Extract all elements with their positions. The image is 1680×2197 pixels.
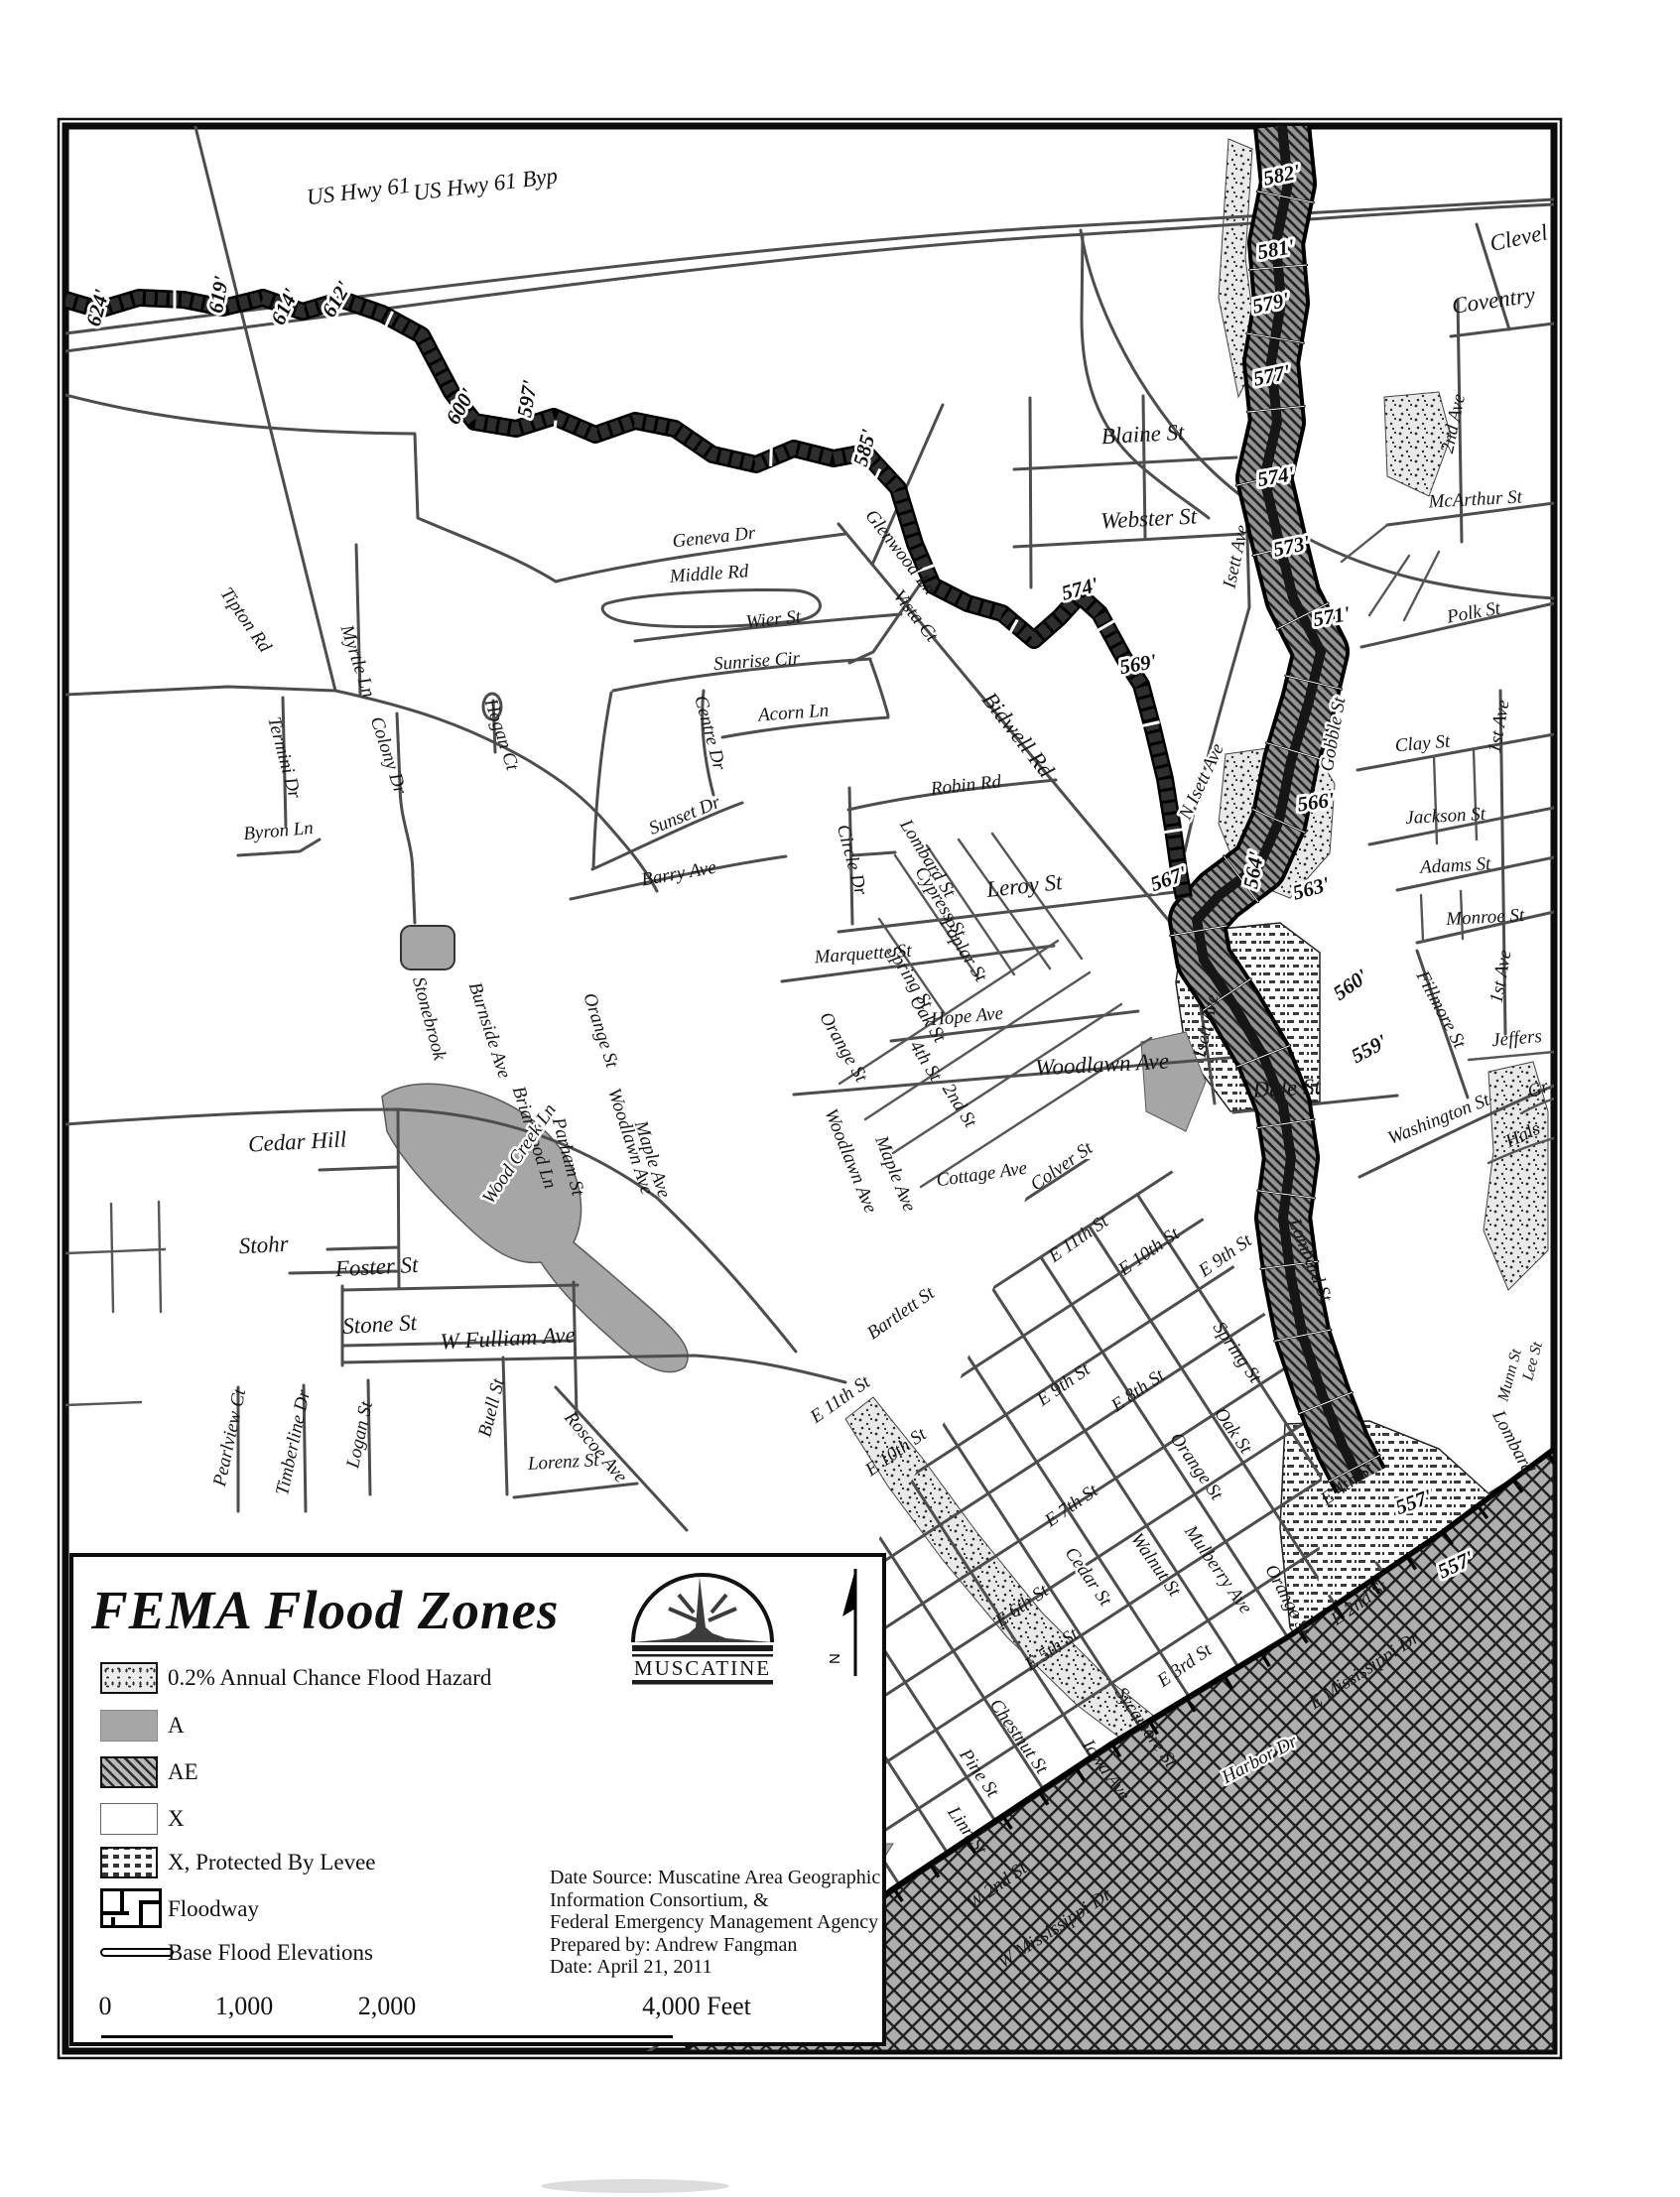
scale-label-4000: 4,000 Feet [642,1992,751,2021]
street-label: Adams St [1418,853,1492,878]
swatch-zone-x [100,1803,158,1835]
street-label: Lorenz St [526,1450,599,1475]
scale-label-2000: 2,000 [358,1992,417,2021]
street-line [554,421,556,441]
swatch-02pct-flood-hazard [100,1662,158,1694]
north-arrow: N [830,1565,869,1689]
street-label: Jeffers [1490,1026,1542,1051]
street-label: Jackson St [1405,804,1486,829]
street-label: Dale St [1251,1074,1322,1102]
scale-label-1000: 1,000 [215,1992,274,2021]
legend-title: FEMA Flood Zones [91,1579,559,1641]
muscatine-logo: MUSCATINE [627,1569,778,1690]
street-label: Stone St [342,1310,419,1339]
swatch-zone-a [100,1710,158,1742]
street-label: Cedar Hill [248,1126,347,1156]
legend-panel: FEMA Flood Zones MUSCATINE N 0.2% Annual… [69,1553,886,2046]
scanned-map-page: { "legend": { "title": "FEMA Flood Zones… [0,0,1680,2197]
swatch-base-flood-elevations [100,1948,174,1957]
scale-bar-line [101,2035,673,2038]
data-source-text: Date Source: Muscatine Area Geographic I… [550,1867,880,1979]
north-label: N [830,1653,843,1664]
scale-label-0: 0 [99,1992,112,2021]
scan-smudge [541,2179,729,2193]
logo-wordmark: MUSCATINE [634,1656,771,1680]
street-label: Foster St [333,1252,419,1281]
swatch-floodway [100,1888,162,1928]
street-label: Blaine St [1100,420,1185,449]
street-line [771,447,772,466]
street-label: Stohr [238,1231,290,1259]
street-label: Webster St [1100,503,1199,533]
swatch-x-protected-by-levee [100,1847,158,1878]
swatch-zone-ae [100,1756,158,1788]
street-label: Monroe St [1445,905,1526,930]
scale-bar: 0 1,000 2,000 4,000 Feet [97,1992,752,2043]
